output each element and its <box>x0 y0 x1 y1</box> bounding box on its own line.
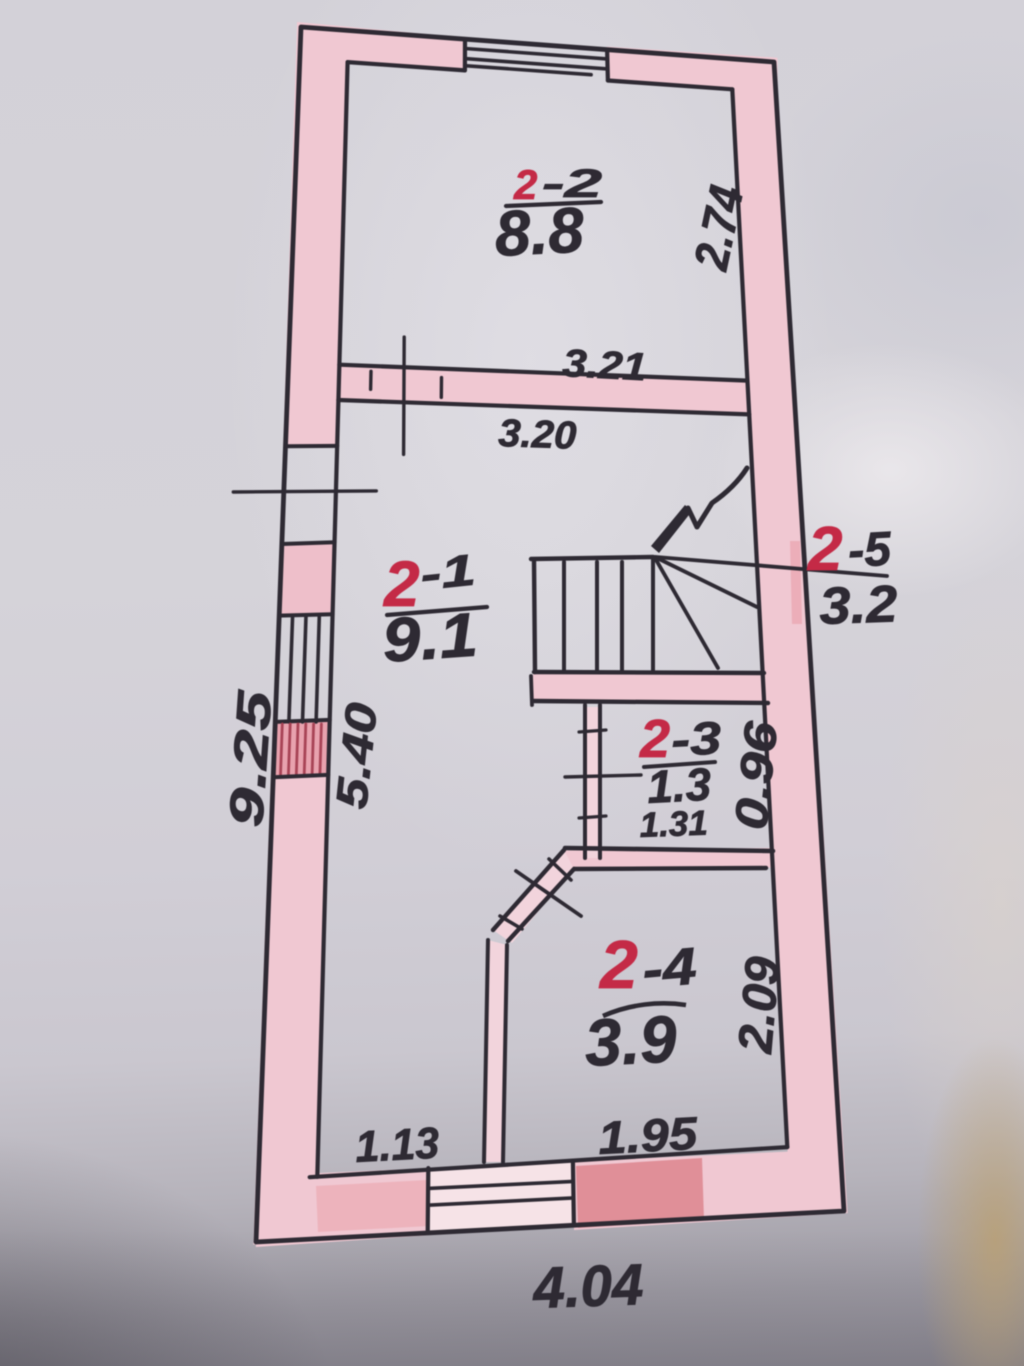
svg-text:2: 2 <box>598 927 638 1003</box>
svg-text:5.40: 5.40 <box>327 700 387 811</box>
svg-text:9.1: 9.1 <box>380 601 480 676</box>
svg-text:3.21: 3.21 <box>562 342 648 389</box>
svg-text:1.31: 1.31 <box>639 804 708 845</box>
svg-text:4.04: 4.04 <box>531 1252 644 1321</box>
svg-text:1.95: 1.95 <box>597 1107 700 1164</box>
svg-text:-4: -4 <box>640 937 699 999</box>
svg-text:2: 2 <box>807 515 842 584</box>
svg-text:9.25: 9.25 <box>220 688 282 829</box>
svg-text:3.20: 3.20 <box>498 412 578 458</box>
svg-text:-1: -1 <box>418 545 478 599</box>
svg-text:8.8: 8.8 <box>493 193 586 270</box>
svg-text:2.09: 2.09 <box>729 954 790 1056</box>
svg-text:3.2: 3.2 <box>818 575 898 636</box>
svg-text:3.9: 3.9 <box>583 1001 679 1080</box>
svg-text:1.13: 1.13 <box>354 1119 440 1172</box>
svg-text:-5: -5 <box>847 523 894 578</box>
